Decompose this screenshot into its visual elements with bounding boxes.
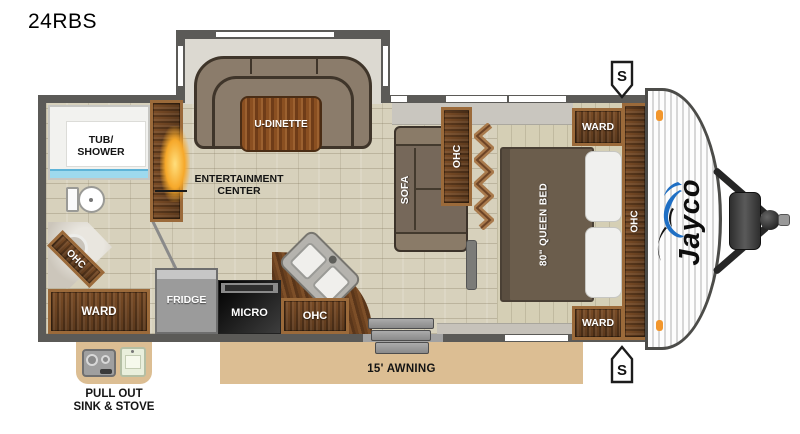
page-title: 24RBS: [28, 10, 97, 34]
dinette-seam-left: [250, 58, 252, 74]
wall-rear: [38, 95, 46, 342]
sofa-armrest-bottom: [396, 232, 466, 250]
bed-ohc-label: OHC: [628, 192, 643, 252]
sink-icon-basin: [125, 355, 141, 369]
jayco-logo: Jayco: [674, 142, 726, 302]
sink-icon-faucet: [131, 350, 134, 353]
sofa-label: SOFA: [398, 160, 412, 220]
wardrobe-bottom: WARD: [572, 306, 624, 340]
cooktop-strip: [221, 283, 278, 293]
hitch-coupler: [760, 210, 780, 230]
microwave-label: MICRO: [219, 307, 280, 319]
entry-step-3: [375, 342, 429, 354]
fridge: FRIDGE: [155, 268, 218, 334]
stove-knob: [100, 369, 112, 374]
queen-bed-label: 80" QUEEN BED: [537, 155, 552, 295]
stove-icon: [82, 349, 116, 377]
kitchen-ohc: OHC: [281, 298, 349, 334]
speaker-marker-top: S: [609, 60, 635, 100]
propane-tank-cover: [729, 192, 761, 250]
slideout-window-right: [383, 46, 388, 86]
pullout-label: PULL OUT SINK & STOVE: [52, 388, 176, 414]
tub-shower-label: TUB/ SHOWER: [58, 135, 144, 159]
microwave: MICRO: [218, 280, 281, 334]
entry-step-1: [368, 318, 434, 329]
slideout-window-left: [178, 46, 183, 86]
side-step: [466, 240, 477, 290]
u-dinette-table: U-DINETTE: [240, 96, 322, 152]
pillow-bottom: [585, 227, 622, 298]
hitch-knob: [778, 214, 790, 226]
fridge-label: FRIDGE: [157, 294, 216, 306]
entertainment-label: ENTERTAINMENT CENTER: [186, 174, 292, 198]
burner-right: [101, 355, 110, 364]
pillow-top: [585, 151, 622, 222]
window-top-1: [391, 96, 407, 102]
pullout-sink-stove: [76, 342, 152, 384]
tub-water-edge: [50, 169, 148, 178]
entertainment-pointer-line: [155, 190, 187, 192]
rear-wardrobe: WARD: [48, 289, 150, 334]
toilet-flush-dot: [89, 198, 93, 202]
accordion-divider: [474, 123, 494, 230]
cooktop-glass: [225, 285, 273, 291]
marker-light-top: [656, 110, 663, 121]
dinette-seam-right: [316, 58, 318, 74]
floorplan-24rbs: 24RBS TUB/ SHOWER OHC WARD ENTERTAINMENT…: [0, 0, 800, 434]
window-top-3: [509, 96, 566, 102]
speaker-marker-bottom: S: [609, 344, 635, 384]
slideout-window-top: [216, 32, 334, 37]
front-wall-shelf: [392, 103, 573, 125]
entry-step-2: [371, 330, 431, 341]
sofa-ohc-label: OHC: [449, 126, 464, 187]
burner-left: [86, 354, 98, 366]
fridge-top-vent: [157, 270, 216, 279]
window-bottom: [505, 335, 568, 341]
marker-light-bottom: [656, 320, 663, 331]
speaker-bottom-letter: S: [617, 362, 627, 379]
window-top-2: [446, 96, 507, 102]
speaker-top-letter: S: [617, 68, 627, 85]
wardrobe-top: WARD: [572, 108, 624, 146]
sink-icon: [120, 347, 146, 377]
sink-faucet: [327, 254, 338, 265]
